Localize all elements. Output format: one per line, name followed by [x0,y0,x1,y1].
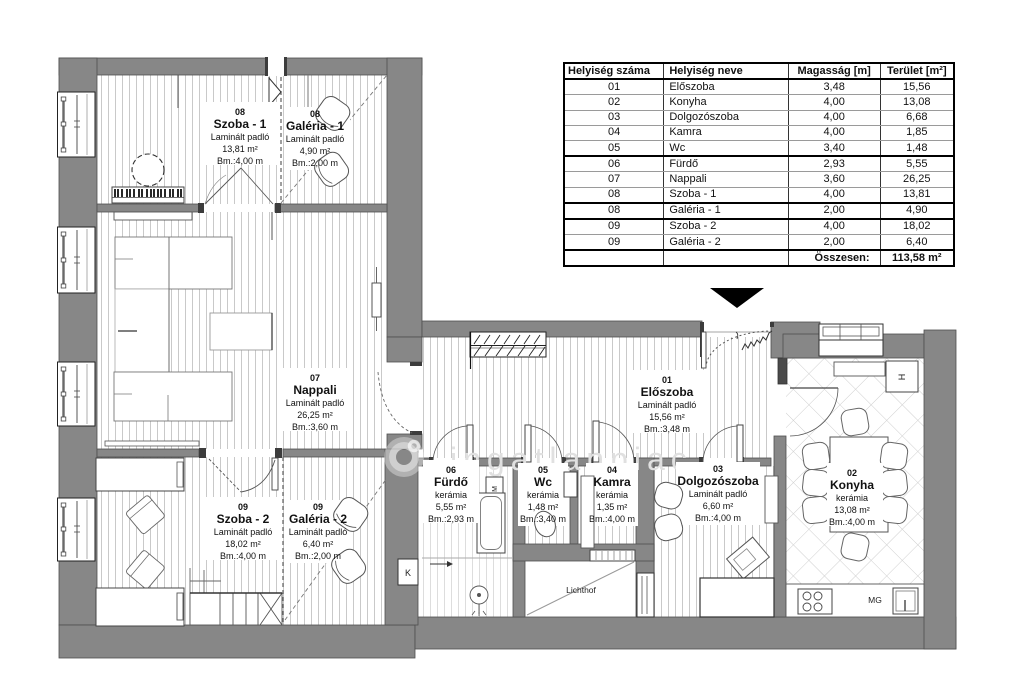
svg-text:08: 08 [235,107,245,117]
svg-text:Bm.:4,00 m: Bm.:4,00 m [695,513,741,523]
svg-text:Laminált padló: Laminált padló [214,527,273,537]
svg-text:Lichthof: Lichthof [566,585,596,595]
svg-text:Laminált padló: Laminált padló [638,400,697,410]
svg-text:1,35 m²: 1,35 m² [597,502,628,512]
svg-text:Szoba - 1: Szoba - 1 [214,117,267,131]
svg-text:Laminált padló: Laminált padló [211,132,270,142]
svg-text:MG: MG [868,595,882,605]
svg-text:1,48 m²: 1,48 m² [528,502,559,512]
svg-text:03: 03 [713,464,723,474]
svg-text:09: 09 [313,502,323,512]
svg-text:K: K [405,568,411,578]
svg-text:Kamra: Kamra [593,475,631,489]
svg-text:M: M [492,486,499,492]
svg-text:Laminált padló: Laminált padló [286,134,345,144]
svg-text:Wc: Wc [534,475,552,489]
svg-text:kerámia: kerámia [836,493,868,503]
svg-text:05: 05 [538,465,548,475]
svg-text:H: H [897,374,907,381]
svg-text:Bm.:4,00 m: Bm.:4,00 m [829,517,875,527]
svg-text:Bm.:2,93 m: Bm.:2,93 m [428,514,474,524]
svg-text:18,02 m²: 18,02 m² [225,539,261,549]
svg-text:6,60 m²: 6,60 m² [703,501,734,511]
svg-text:01: 01 [662,375,672,385]
svg-text:kerámia: kerámia [596,490,628,500]
svg-text:6,40 m²: 6,40 m² [303,539,334,549]
svg-text:Laminált padló: Laminált padló [286,398,345,408]
svg-text:Bm.:3,40 m: Bm.:3,40 m [520,514,566,524]
svg-text:Laminált padló: Laminált padló [289,527,348,537]
svg-text:Laminált padló: Laminált padló [689,489,748,499]
svg-text:04: 04 [607,465,617,475]
svg-text:Fürdő: Fürdő [434,475,468,489]
svg-text:06: 06 [446,465,456,475]
svg-text:02: 02 [847,468,857,478]
svg-text:5,55 m²: 5,55 m² [436,502,467,512]
svg-text:08: 08 [310,109,320,119]
svg-text:Szoba - 2: Szoba - 2 [217,512,270,526]
svg-text:13,81 m²: 13,81 m² [222,144,258,154]
svg-text:Nappali: Nappali [293,383,336,397]
svg-text:Galéria - 1: Galéria - 1 [286,119,344,133]
svg-text:Bm.:3,48 m: Bm.:3,48 m [644,424,690,434]
svg-text:Bm.:2,00 m: Bm.:2,00 m [295,551,341,561]
svg-text:4,90 m²: 4,90 m² [300,146,331,156]
svg-text:kerámia: kerámia [527,490,559,500]
svg-text:Előszoba: Előszoba [641,385,694,399]
svg-text:Bm.:4,00 m: Bm.:4,00 m [589,514,635,524]
svg-text:Bm.:4,00 m: Bm.:4,00 m [217,156,263,166]
svg-text:26,25 m²: 26,25 m² [297,410,333,420]
svg-text:Galéria - 2: Galéria - 2 [289,512,347,526]
svg-text:Bm.:4,00 m: Bm.:4,00 m [220,551,266,561]
svg-text:07: 07 [310,373,320,383]
svg-text:Dolgozószoba: Dolgozószoba [677,474,759,488]
svg-text:Bm.:3,60 m: Bm.:3,60 m [292,422,338,432]
svg-text:kerámia: kerámia [435,490,467,500]
svg-text:Konyha: Konyha [830,478,874,492]
svg-text:09: 09 [238,502,248,512]
svg-text:15,56 m²: 15,56 m² [649,412,685,422]
svg-text:Bm.:2,00 m: Bm.:2,00 m [292,158,338,168]
svg-text:13,08 m²: 13,08 m² [834,505,870,515]
